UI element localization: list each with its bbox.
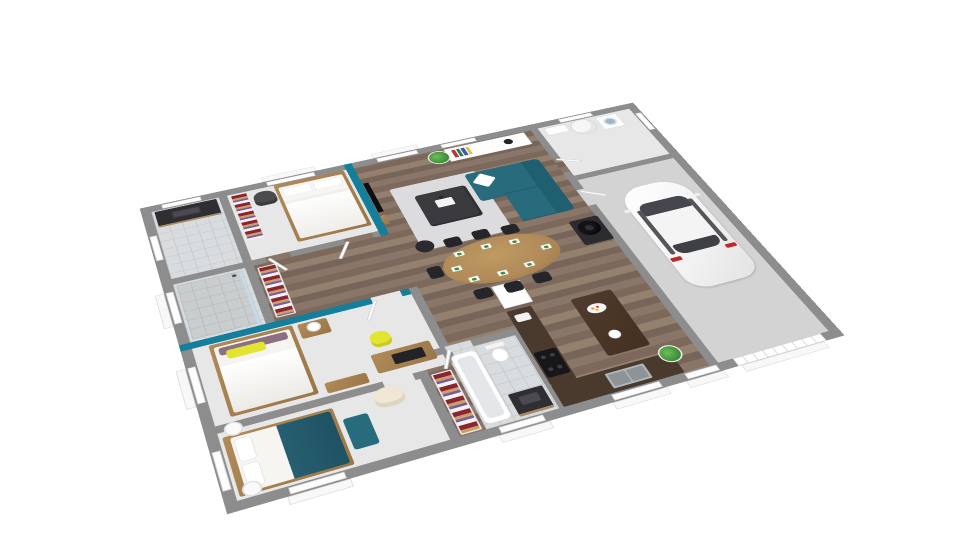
floorplan-3d-scene — [140, 103, 845, 515]
house-plan — [140, 103, 845, 515]
floorplan-stage — [0, 0, 960, 540]
